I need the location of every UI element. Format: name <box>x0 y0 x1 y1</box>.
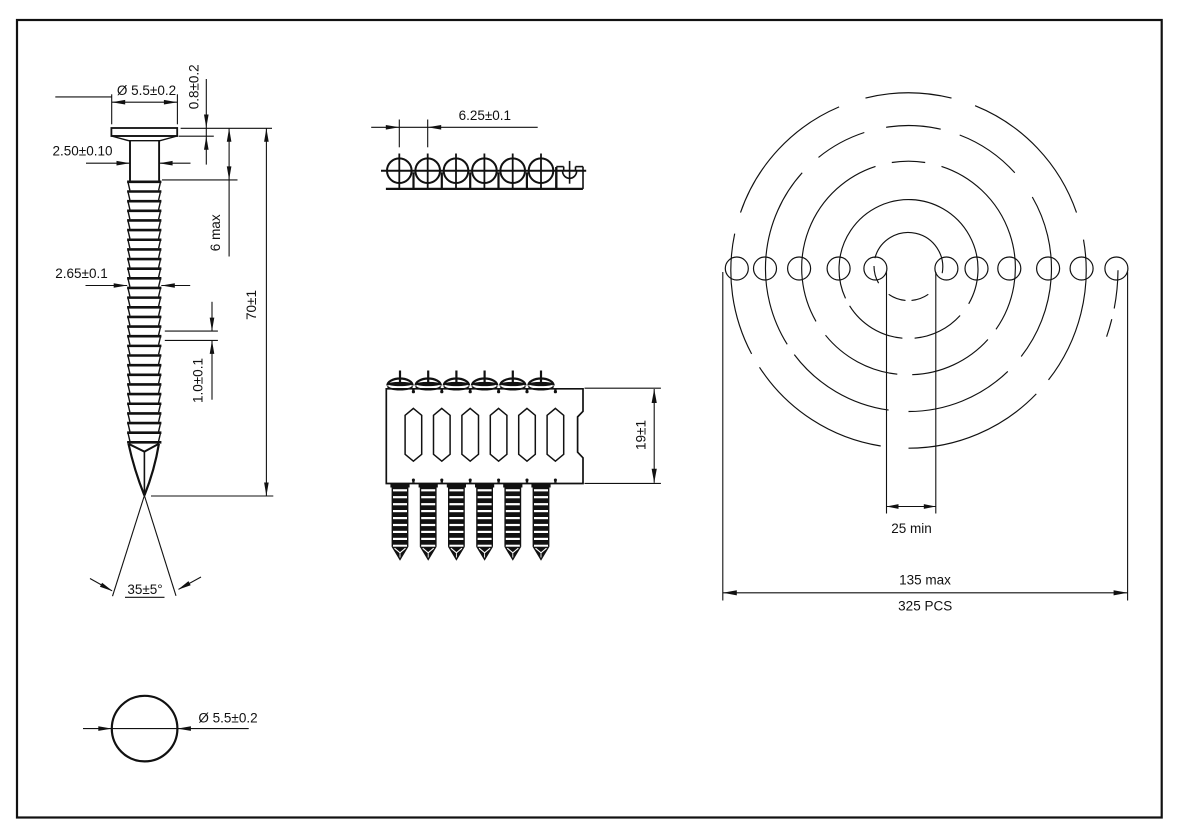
svg-text:325 PCS: 325 PCS <box>898 599 952 614</box>
svg-text:Ø 5.5±0.2: Ø 5.5±0.2 <box>117 83 176 98</box>
svg-text:70±1: 70±1 <box>244 290 259 320</box>
svg-text:19±1: 19±1 <box>634 420 649 450</box>
svg-text:135 max: 135 max <box>899 573 951 588</box>
svg-text:0.8±0.2: 0.8±0.2 <box>187 64 202 109</box>
svg-text:2.50±0.10: 2.50±0.10 <box>53 144 113 159</box>
svg-text:6 max: 6 max <box>208 214 223 251</box>
svg-text:2.65±0.1: 2.65±0.1 <box>55 266 107 281</box>
svg-text:1.0±0.1: 1.0±0.1 <box>191 358 206 403</box>
svg-text:Ø 5.5±0.2: Ø 5.5±0.2 <box>198 711 257 726</box>
svg-text:25 min: 25 min <box>891 521 932 536</box>
svg-text:6.25±0.1: 6.25±0.1 <box>459 108 511 123</box>
svg-text:35±5°: 35±5° <box>127 582 162 597</box>
